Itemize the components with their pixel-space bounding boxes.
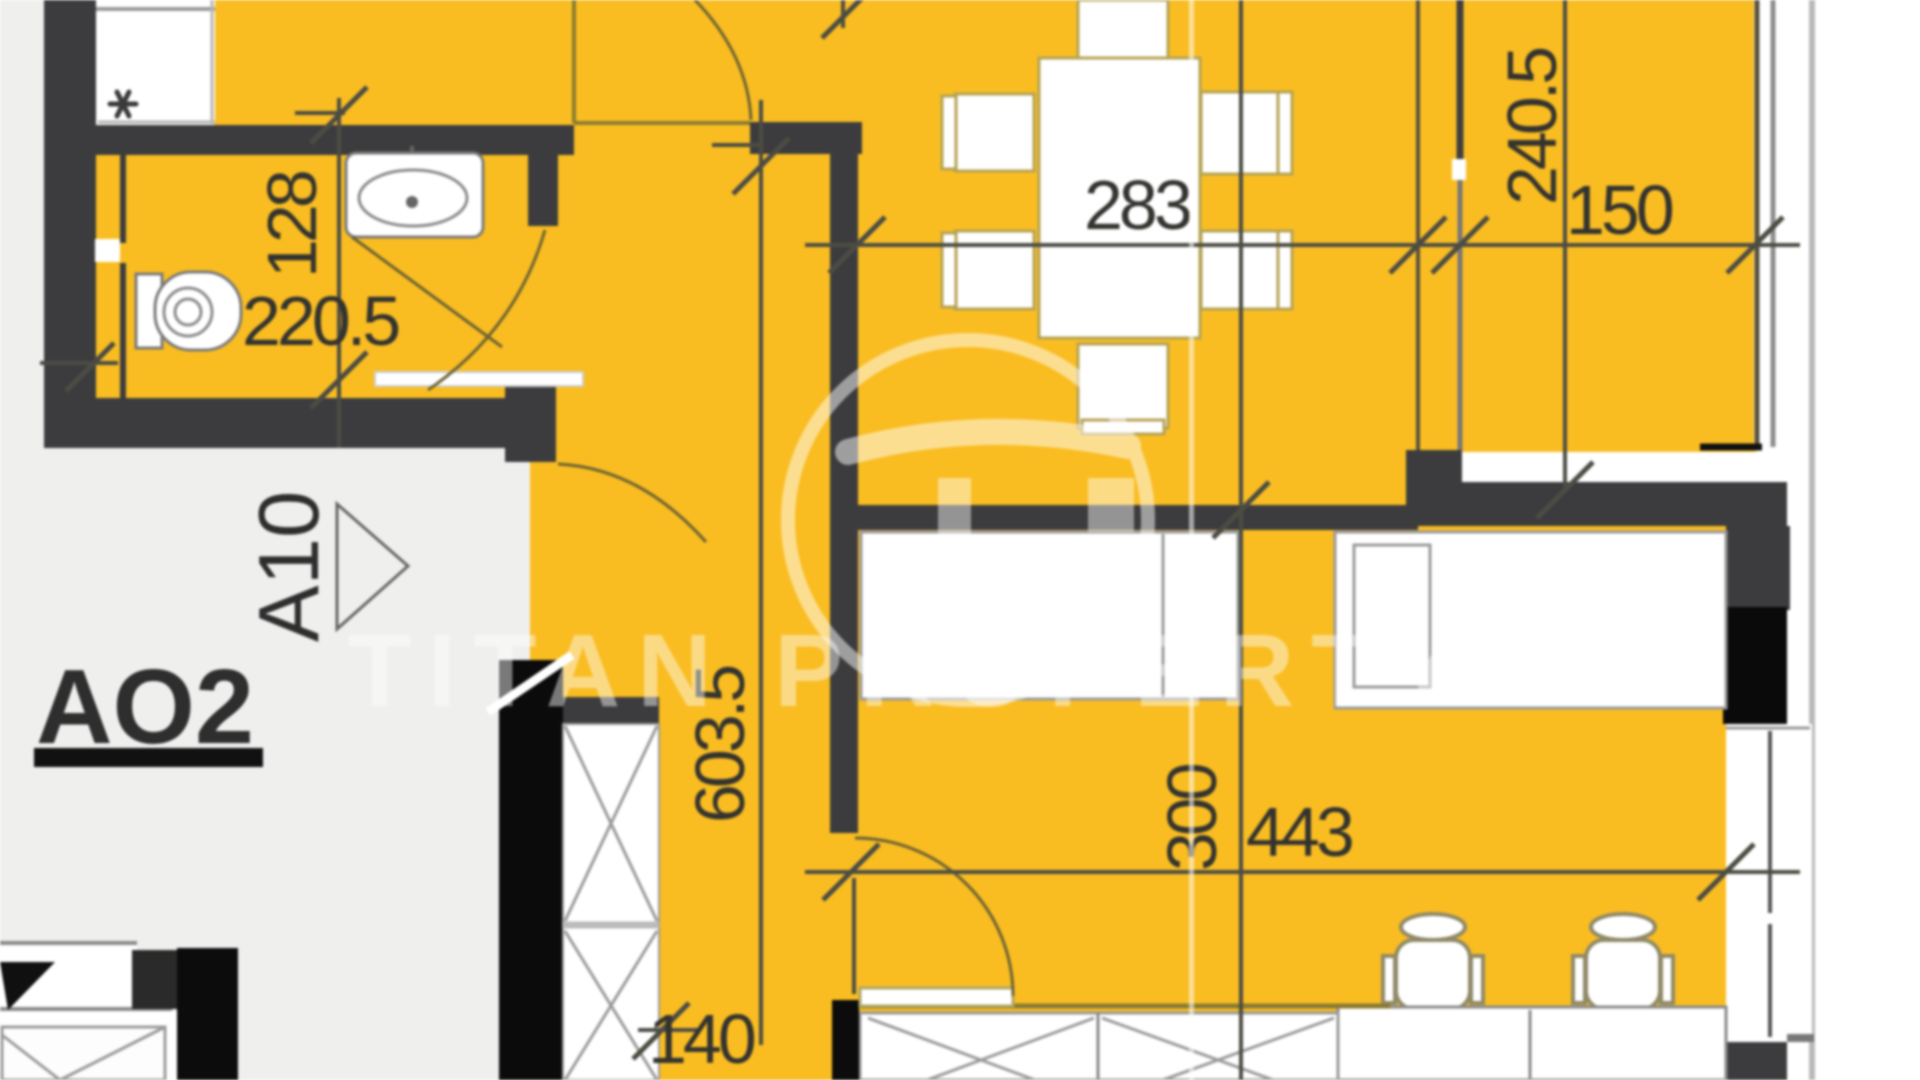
svg-text:150: 150	[1566, 171, 1673, 249]
svg-text:TITAN PROPERTY: TITAN PROPERTY	[348, 613, 1477, 728]
svg-text:283: 283	[1084, 166, 1190, 244]
svg-text:220.5: 220.5	[242, 282, 398, 360]
svg-text:A10: A10	[242, 491, 337, 642]
svg-text:240.5: 240.5	[1493, 49, 1571, 205]
svg-text:443: 443	[1246, 793, 1352, 871]
svg-text:128: 128	[253, 172, 331, 278]
svg-text:140: 140	[648, 1000, 755, 1078]
